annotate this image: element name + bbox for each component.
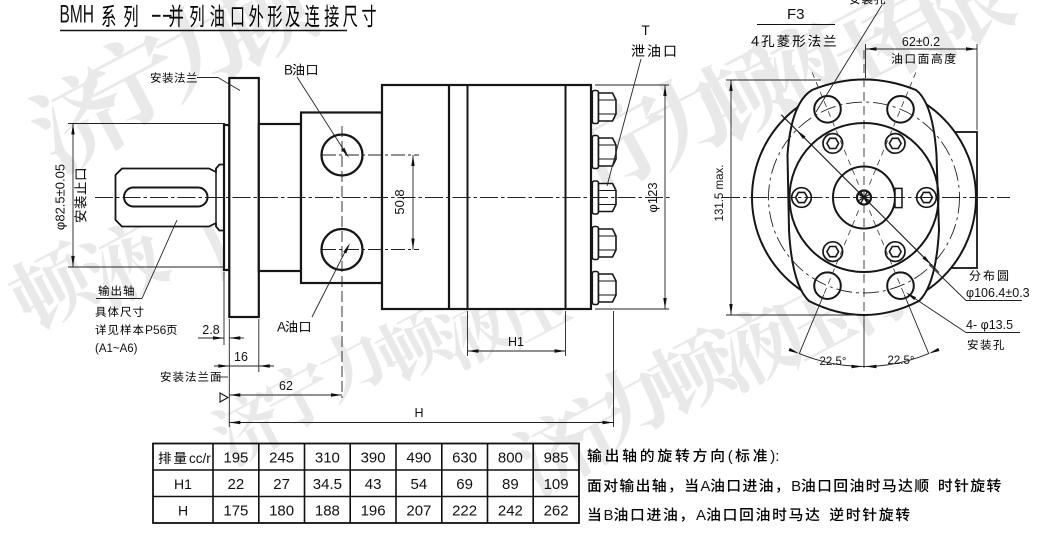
svg-text:27: 27 [273, 476, 290, 493]
svg-text:800: 800 [498, 450, 523, 467]
svg-text:φ123: φ123 [645, 182, 660, 212]
svg-text:16: 16 [234, 350, 248, 364]
svg-text:φ106.4±0.3: φ106.4±0.3 [966, 286, 1030, 300]
svg-text:H: H [414, 406, 423, 420]
svg-text:22.5°: 22.5° [820, 356, 847, 368]
svg-text:B: B [791, 478, 801, 495]
svg-text:22.5°: 22.5° [888, 355, 915, 367]
svg-text:φ82.5±0.05: φ82.5±0.05 [53, 164, 68, 230]
svg-text:390: 390 [361, 450, 386, 467]
svg-text:2.8: 2.8 [202, 323, 219, 337]
svg-text:54: 54 [411, 476, 428, 493]
svg-text:(A1~A6): (A1~A6) [95, 343, 138, 355]
svg-text:F3: F3 [787, 6, 805, 23]
svg-text:175: 175 [223, 503, 248, 520]
svg-text:62: 62 [279, 379, 293, 393]
svg-text:P56: P56 [145, 323, 167, 337]
svg-text:(: ( [728, 448, 733, 465]
svg-text:630: 630 [452, 450, 477, 467]
svg-text:310: 310 [315, 450, 340, 467]
svg-text:242: 242 [498, 503, 523, 520]
svg-text:A: A [277, 320, 286, 335]
svg-text:50.8: 50.8 [392, 189, 407, 214]
svg-text:195: 195 [223, 450, 248, 467]
svg-text:180: 180 [269, 503, 294, 520]
svg-text:262: 262 [544, 503, 569, 520]
svg-text:222: 222 [452, 503, 477, 520]
svg-text:207: 207 [406, 503, 431, 520]
svg-text:69: 69 [456, 476, 473, 493]
svg-text:34.5: 34.5 [313, 476, 342, 493]
svg-text:H1: H1 [174, 476, 192, 492]
svg-text:):: ): [770, 448, 779, 465]
svg-text:BMH: BMH [60, 1, 94, 29]
svg-text:245: 245 [269, 450, 294, 467]
svg-text:cc/r: cc/r [189, 451, 211, 466]
svg-text:B: B [284, 63, 293, 78]
svg-text:196: 196 [361, 503, 386, 520]
svg-text:985: 985 [544, 450, 569, 467]
svg-text:T: T [642, 23, 650, 38]
svg-text:43: 43 [365, 476, 382, 493]
svg-text:4: 4 [751, 34, 759, 50]
svg-text:62±0.2: 62±0.2 [902, 35, 940, 49]
svg-text:4- φ13.5: 4- φ13.5 [966, 318, 1013, 332]
svg-text:109: 109 [544, 476, 569, 493]
svg-text:490: 490 [406, 450, 431, 467]
svg-text:A: A [700, 478, 710, 495]
svg-text:22: 22 [228, 476, 245, 493]
svg-text:188: 188 [315, 503, 340, 520]
svg-text:A: A [696, 507, 706, 524]
svg-text:B: B [604, 507, 614, 524]
svg-text:131.5 max.: 131.5 max. [714, 165, 726, 222]
svg-text:H1: H1 [508, 335, 524, 349]
svg-text:89: 89 [502, 476, 519, 493]
svg-text:H: H [178, 503, 188, 519]
